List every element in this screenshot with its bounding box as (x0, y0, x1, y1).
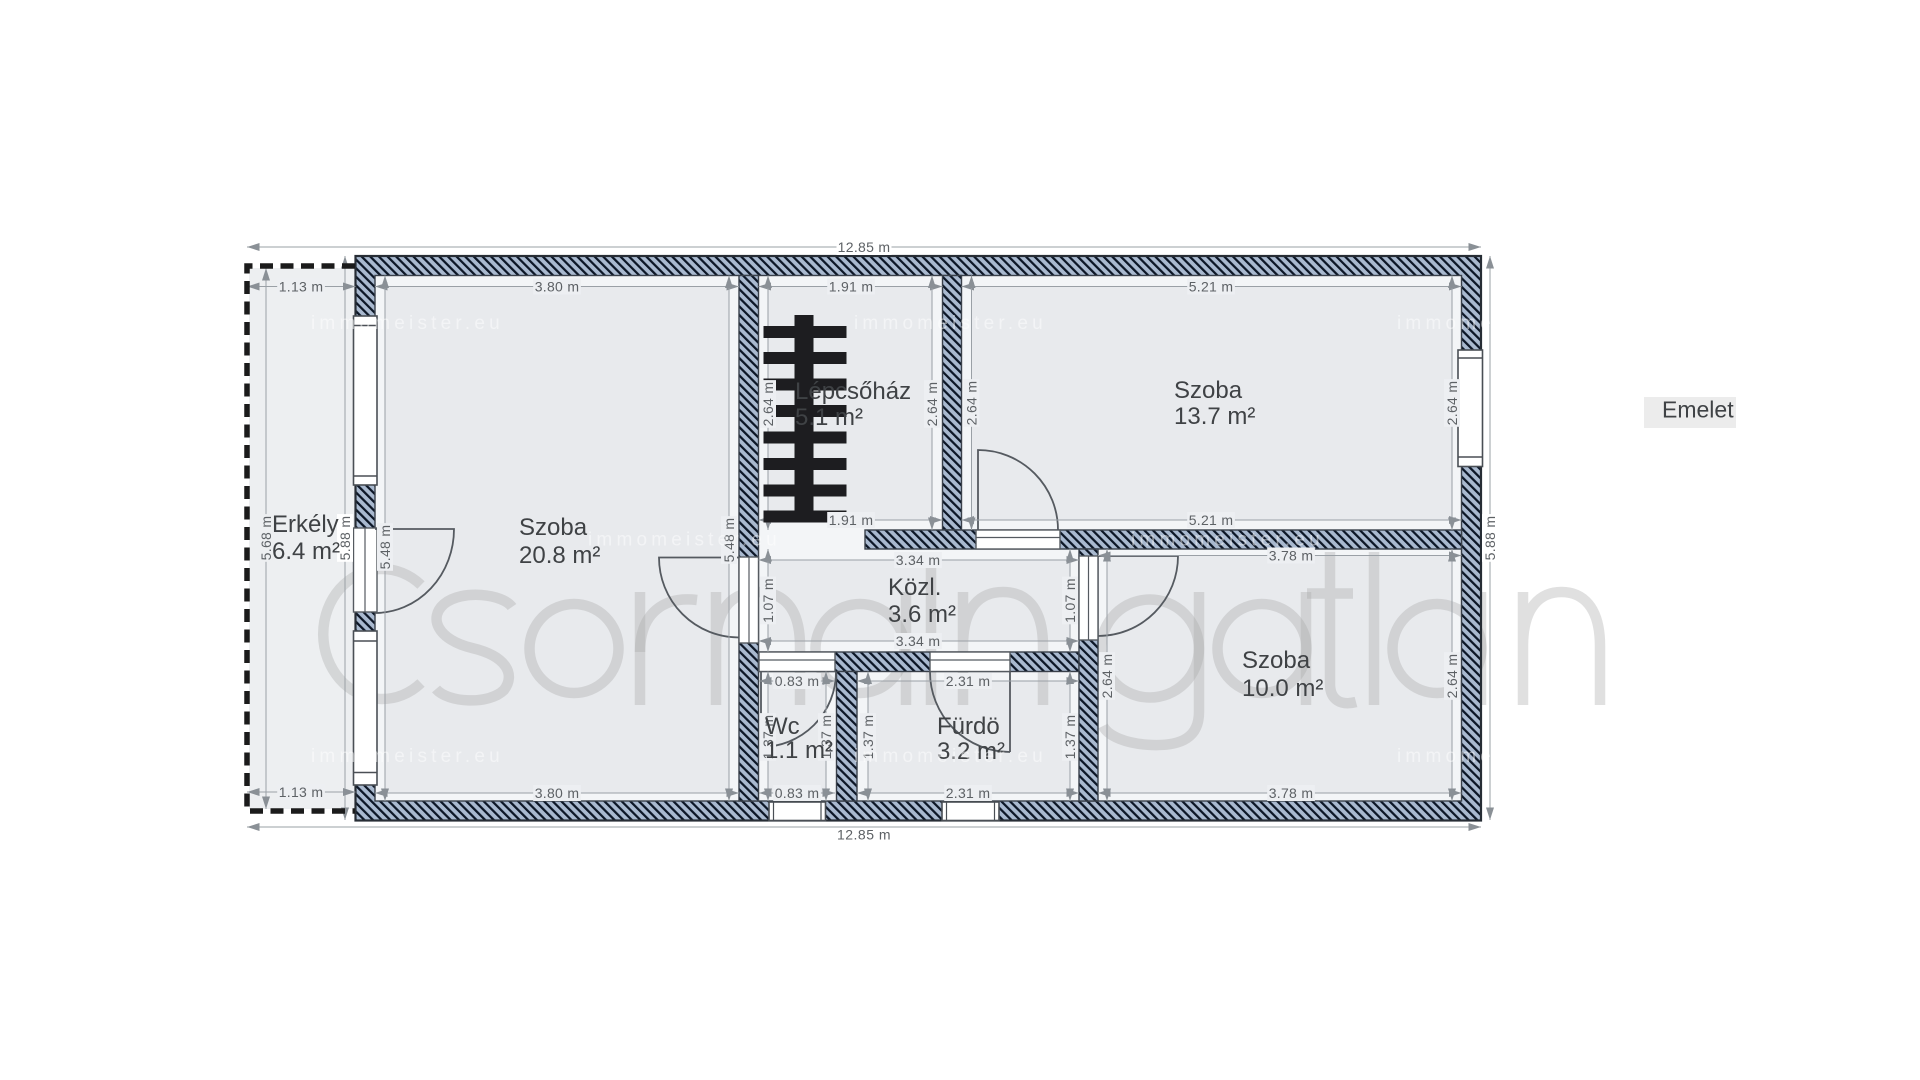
svg-text:2.64 m: 2.64 m (1444, 654, 1460, 699)
svg-text:immomeister.eu: immomeister.eu (1131, 530, 1324, 551)
svg-text:2.64 m: 2.64 m (760, 382, 776, 427)
svg-text:Wc: Wc (765, 713, 800, 740)
svg-text:12.85 m: 12.85 m (838, 239, 891, 255)
svg-text:immomeister.eu: immomeister.eu (1397, 313, 1590, 334)
svg-text:immomeister.eu: immomeister.eu (311, 313, 504, 334)
svg-text:5.88 m: 5.88 m (1482, 516, 1498, 561)
svg-text:Erkély: Erkély (272, 511, 339, 538)
svg-text:5.1 m²: 5.1 m² (795, 404, 863, 431)
svg-text:1.13 m: 1.13 m (279, 279, 324, 295)
svg-text:1.07 m: 1.07 m (1062, 578, 1078, 623)
svg-text:immomeister.eu: immomeister.eu (311, 746, 504, 767)
svg-text:immomeister.eu: immomeister.eu (854, 746, 1047, 767)
svg-text:Szoba: Szoba (519, 514, 588, 541)
svg-text:immomeister.eu: immomeister.eu (854, 313, 1047, 334)
svg-text:1.37 m: 1.37 m (1062, 715, 1078, 760)
svg-text:immomeister.eu: immomeister.eu (45, 530, 238, 551)
svg-text:immomeister.eu: immomeister.eu (1674, 530, 1867, 551)
svg-text:2.64 m: 2.64 m (1444, 381, 1460, 426)
svg-text:1.1 m²: 1.1 m² (765, 737, 833, 764)
svg-text:Szoba: Szoba (1242, 647, 1311, 674)
svg-text:Emelet: Emelet (1662, 397, 1734, 423)
svg-text:5.21 m: 5.21 m (1189, 512, 1234, 528)
svg-text:1.13 m: 1.13 m (279, 784, 324, 800)
svg-text:12.85 m: 12.85 m (837, 827, 891, 843)
svg-text:2.64 m: 2.64 m (924, 382, 940, 427)
svg-text:13.7 m²: 13.7 m² (1174, 403, 1255, 430)
svg-text:3.6 m²: 3.6 m² (888, 601, 956, 628)
svg-text:Fürdö: Fürdö (937, 713, 1000, 740)
svg-text:10.0 m²: 10.0 m² (1242, 675, 1323, 702)
svg-text:0.83 m: 0.83 m (775, 673, 820, 689)
svg-text:3.80 m: 3.80 m (535, 785, 580, 801)
svg-text:2.31 m: 2.31 m (946, 785, 991, 801)
svg-text:3.80 m: 3.80 m (535, 279, 580, 295)
svg-text:2.64 m: 2.64 m (1099, 654, 1115, 699)
svg-text:1.91 m: 1.91 m (829, 512, 874, 528)
svg-text:2.31 m: 2.31 m (946, 673, 991, 689)
svg-text:Közl.: Közl. (888, 574, 941, 601)
svg-text:5.48 m: 5.48 m (377, 525, 393, 570)
svg-text:3.34 m: 3.34 m (896, 633, 941, 649)
svg-text:0.83 m: 0.83 m (775, 785, 820, 801)
svg-text:1.07 m: 1.07 m (760, 578, 776, 623)
svg-text:6.4 m²: 6.4 m² (272, 538, 340, 565)
svg-text:3.78 m: 3.78 m (1269, 785, 1314, 801)
svg-text:1.91 m: 1.91 m (829, 279, 874, 295)
svg-text:5.21 m: 5.21 m (1189, 279, 1234, 295)
svg-text:2.64 m: 2.64 m (964, 381, 980, 426)
svg-text:immomeister.eu: immomeister.eu (1397, 746, 1590, 767)
svg-text:immomeister.eu: immomeister.eu (588, 530, 781, 551)
svg-text:Szoba: Szoba (1174, 377, 1243, 404)
svg-text:3.34 m: 3.34 m (896, 552, 941, 568)
svg-text:Lépcsőház: Lépcsőház (795, 378, 911, 405)
